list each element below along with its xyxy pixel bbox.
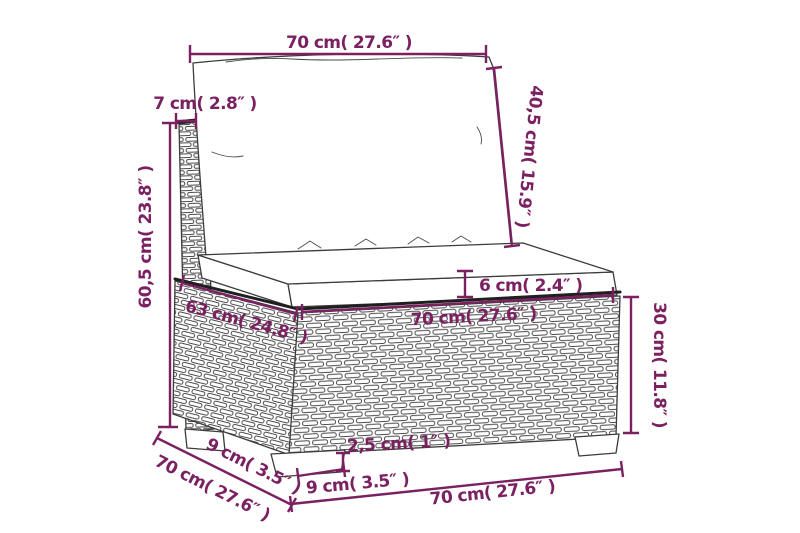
dim-label-cushion-thickness: 6 cm( 2.4″ ) <box>479 276 582 296</box>
dim-label-backrest-thickness: 7 cm( 2.8″ ) <box>153 94 256 114</box>
dim-label-foot-height: 2,5 cm( 1″ ) <box>347 431 451 456</box>
dim-label-overall-width: 70 cm( 27.6″ ) <box>429 477 556 510</box>
dim-foot-height: 2,5 cm( 1″ ) <box>336 431 451 471</box>
dim-label-pillow-height: 40,5 cm( 15.9″ ) <box>512 84 547 228</box>
dim-label-pillow-width: 70 cm( 27.6″ ) <box>286 33 412 53</box>
back-cushion <box>193 54 511 257</box>
diagram-canvas: 70 cm( 27.6″ ) 40,5 cm( 15.9″ ) 7 cm( 2.… <box>0 0 800 533</box>
dim-overall-height: 60,5 cm( 23.8″ ) <box>136 123 178 427</box>
dim-label-overall-height: 60,5 cm( 23.8″ ) <box>136 166 156 309</box>
furniture-dimension-diagram: 70 cm( 27.6″ ) 40,5 cm( 15.9″ ) 7 cm( 2.… <box>0 0 800 533</box>
dim-label-base-height: 30 cm( 11.8″ ) <box>649 302 669 428</box>
foot-right <box>575 434 619 456</box>
dim-base-height: 30 cm( 11.8″ ) <box>623 297 669 433</box>
